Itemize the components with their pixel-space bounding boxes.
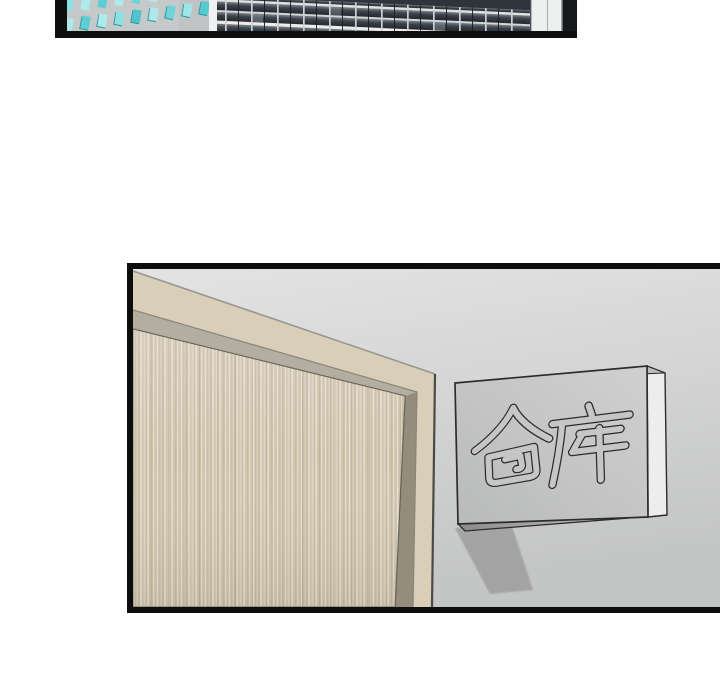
building-corner-highlight	[209, 0, 217, 31]
panel-city-buildings	[55, 0, 577, 38]
warehouse-door-art	[127, 263, 720, 613]
left-building	[61, 0, 211, 33]
building-dark-edge	[563, 0, 577, 31]
panel-warehouse-door: 仓库	[127, 263, 720, 613]
sign-side-face	[647, 366, 667, 517]
comic-page: 仓库	[0, 0, 720, 700]
city-buildings-art	[55, 0, 577, 38]
warehouse-sign	[455, 366, 667, 531]
